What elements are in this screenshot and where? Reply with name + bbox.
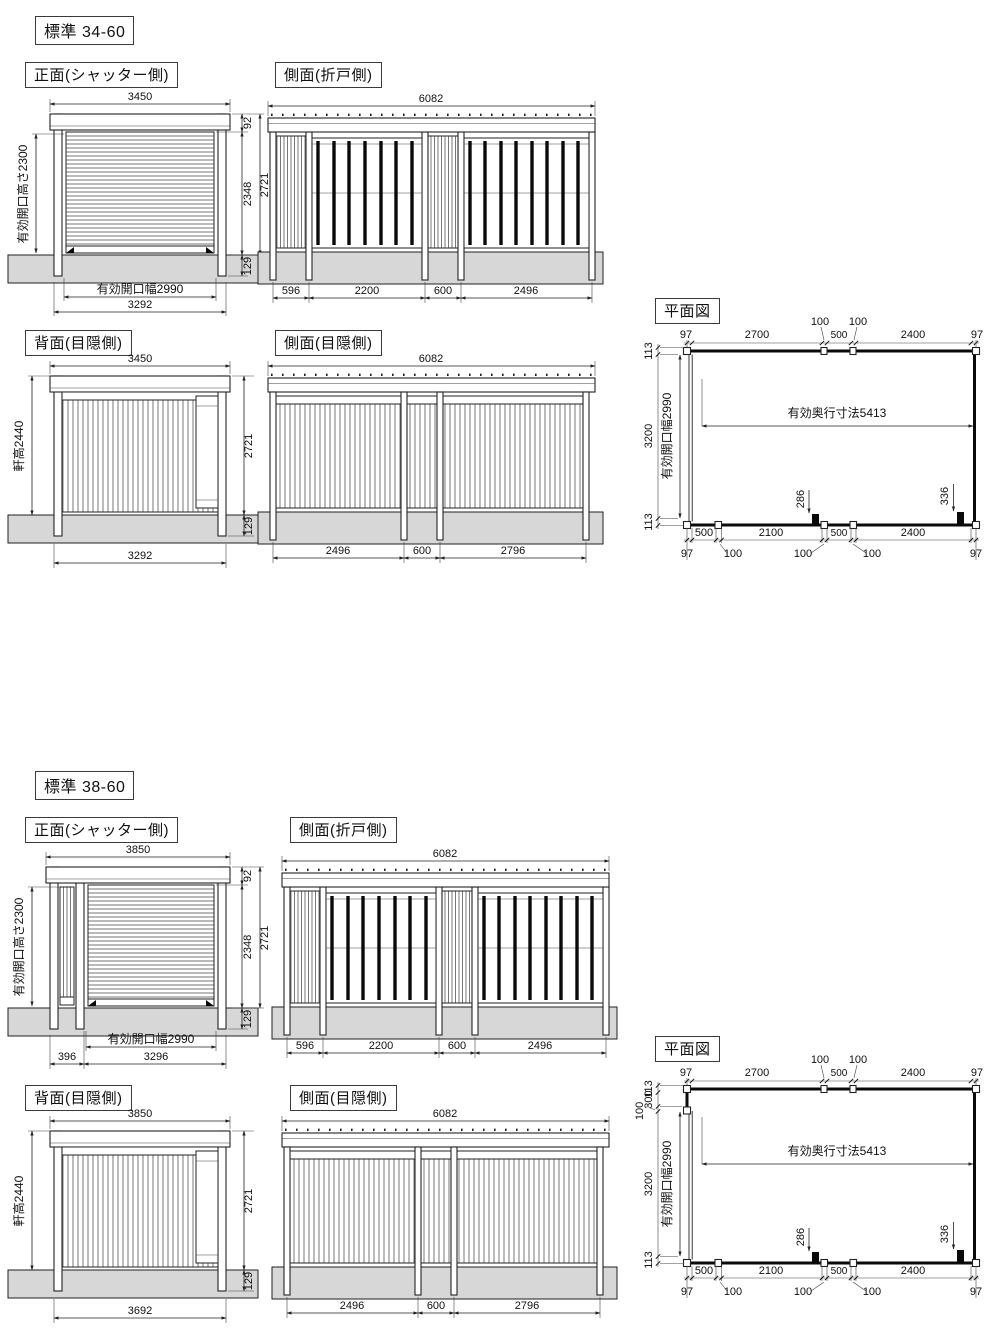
dim-width-top: 3450	[128, 91, 152, 103]
dim-top-6: 2400	[901, 1067, 925, 1079]
dim-eave-height: 軒高2440	[11, 1175, 26, 1226]
view-label-side-fold: 側面(折戸側)	[275, 62, 382, 88]
side-screen-elevation-drawing: 6082 2496 600 2796	[258, 352, 603, 570]
dim-bay-1: 2496	[326, 545, 350, 557]
dim-width-top: 3450	[128, 353, 152, 365]
screen-panel	[62, 1155, 218, 1267]
back-elevation-drawing: 3450 軒高2440 2721 129 3292	[6, 352, 272, 574]
dim-top-7: 97	[971, 1067, 983, 1079]
dim-bottom2-5: 97	[970, 548, 982, 560]
dim-eave-height: 軒高2440	[11, 420, 26, 471]
dim-shutter-height: 2348	[242, 935, 254, 959]
shutter-panel	[66, 132, 214, 253]
dim-bottom2-1: 97	[681, 1286, 693, 1298]
service-door	[196, 1151, 218, 1263]
dim-bottom1-1: 500	[695, 527, 713, 539]
dim-mark-mid: 286	[795, 1228, 807, 1246]
dim-width-bottom: 3292	[128, 299, 152, 311]
model-title-34-60: 標準 34-60	[35, 16, 134, 45]
side-screen-elevation-drawing: 6082 2496 600 2796	[272, 1107, 617, 1325]
dim-bay-2: 600	[427, 1300, 445, 1312]
dim-below-gl: 129	[242, 257, 254, 275]
dim-opening-height: 有効開口高さ2300	[11, 897, 26, 996]
dim-top-5: 100	[849, 316, 867, 328]
dim-width-top: 3850	[128, 1108, 152, 1120]
dim-bay-2: 2200	[355, 285, 379, 297]
dim-shutter-height: 2348	[242, 182, 254, 206]
dim-total-height: 2721	[243, 434, 255, 458]
dim-bottom1-3: 500	[831, 1266, 848, 1277]
dim-opening-width: 有効開口幅2990	[659, 1140, 674, 1227]
dim-opening-width: 有効開口幅2990	[659, 392, 674, 479]
side-fold-elevation-drawing: 6082 596 2200 600 2496	[258, 92, 603, 310]
dim-top-3: 100	[811, 1054, 829, 1066]
service-door	[196, 396, 218, 508]
dim-bottom1-4: 2400	[901, 1265, 925, 1277]
dim-bay-3: 2796	[501, 545, 525, 557]
dim-bay-4: 2496	[514, 285, 538, 297]
dim-depth: 有効奥行寸法5413	[788, 1143, 887, 1158]
dim-top-1: 97	[680, 329, 692, 341]
front-elevation-drawing: 3850 92 2348 129 2721 有効開口高さ2300 有効開口幅29…	[6, 843, 272, 1083]
dim-total-height: 2721	[259, 926, 271, 950]
plan-view-drawing: 97 2700 100 500 100 2400 97 113 300 100 …	[640, 1054, 1000, 1306]
anchor-mark-right	[957, 1250, 964, 1263]
dim-below-gl: 129	[243, 1272, 255, 1290]
dim-roof-height: 92	[242, 870, 254, 882]
view-label-front: 正面(シャッター側)	[25, 62, 178, 88]
dim-width-bottom: 3296	[144, 1051, 168, 1063]
dim-top-4: 500	[831, 1068, 848, 1079]
dim-width-top: 6082	[433, 1108, 457, 1120]
dim-bottom1-2: 2100	[759, 527, 783, 539]
view-label-front: 正面(シャッター側)	[25, 817, 178, 843]
dim-left-4: 3200	[643, 1172, 655, 1196]
dim-left-3: 113	[643, 513, 655, 531]
dim-bottom2-4: 100	[863, 548, 881, 560]
dim-bay-1: 596	[296, 1040, 314, 1052]
dim-bay-3: 2796	[515, 1300, 539, 1312]
dim-below-gl: 129	[243, 517, 255, 535]
side-slat-panel	[60, 887, 74, 997]
screen-panel	[290, 1159, 597, 1263]
dim-mark-right: 336	[939, 487, 951, 505]
dim-bay-1: 596	[282, 285, 300, 297]
dim-bottom2-4: 100	[863, 1286, 881, 1298]
dim-width-top: 6082	[433, 848, 457, 860]
dim-left-5: 113	[643, 1251, 655, 1269]
dim-left-1: 113	[643, 342, 655, 360]
front-elevation-drawing: 3450 92 2348 129 2721 有効開口高さ2300 有効開口幅29…	[6, 90, 272, 322]
dim-mark-mid: 286	[795, 490, 807, 508]
dim-left-3: 100	[634, 1102, 646, 1120]
dim-top-1: 97	[680, 1067, 692, 1079]
dim-opening-width: 有効開口幅2990	[97, 281, 184, 296]
dim-bay-2: 2200	[369, 1040, 393, 1052]
dim-opening-width: 有効開口幅2990	[108, 1031, 195, 1046]
dim-roof-height: 92	[242, 117, 254, 129]
dim-top-2: 2700	[745, 1067, 769, 1079]
dim-below-gl: 129	[242, 1010, 254, 1028]
dim-top-2: 2700	[745, 329, 769, 341]
dim-bottom2-3: 100	[794, 1286, 812, 1298]
dim-width-top: 6082	[419, 353, 443, 365]
dim-bay-1: 2496	[340, 1300, 364, 1312]
back-elevation-drawing: 3850 軒高2440 2721 129 3692	[6, 1107, 272, 1329]
dim-side-panel: 396	[58, 1051, 76, 1063]
dim-mark-right: 336	[939, 1225, 951, 1243]
drawing-sheet: 標準 34-60 正面(シャッター側) 3450 92 2348 129 272…	[0, 0, 1000, 1332]
dim-bottom2-3: 100	[794, 548, 812, 560]
dim-total-height: 2721	[243, 1189, 255, 1213]
dim-left-2: 3200	[643, 424, 655, 448]
dim-bottom1-3: 500	[831, 528, 848, 539]
dim-bay-2: 600	[413, 545, 431, 557]
anchor-mark-right	[957, 512, 964, 525]
dim-opening-height: 有効開口高さ2300	[15, 144, 30, 243]
shutter-panel	[88, 885, 214, 1006]
dim-top-7: 97	[971, 329, 983, 341]
anchor-mark-mid	[812, 1252, 819, 1263]
dim-top-5: 100	[849, 1054, 867, 1066]
screen-panel	[276, 404, 583, 508]
view-label-side-fold: 側面(折戸側)	[290, 817, 397, 843]
dim-width-bottom: 3292	[128, 550, 152, 562]
model-title-38-60: 標準 38-60	[35, 771, 134, 800]
dim-bottom2-1: 97	[681, 548, 693, 560]
dim-bottom2-2: 100	[724, 1286, 742, 1298]
dim-bottom1-4: 2400	[901, 527, 925, 539]
dim-bottom1-2: 2100	[759, 1265, 783, 1277]
dim-depth: 有効奥行寸法5413	[788, 405, 887, 420]
dim-bay-4: 2496	[528, 1040, 552, 1052]
dim-top-6: 2400	[901, 329, 925, 341]
plan-view-drawing: 97 2700 100 500 100 2400 97 113 3200 113…	[640, 316, 1000, 568]
side-fold-elevation-drawing: 6082 596 2200 600 2496	[272, 847, 617, 1065]
dim-bay-3: 600	[448, 1040, 466, 1052]
screen-panel	[62, 400, 218, 512]
dim-top-3: 100	[811, 316, 829, 328]
anchor-mark-mid	[812, 514, 819, 525]
dim-width-top: 3850	[126, 844, 150, 856]
dim-bottom1-1: 500	[695, 1265, 713, 1277]
dim-width-top: 6082	[419, 93, 443, 105]
dim-top-4: 500	[831, 330, 848, 341]
dim-bottom2-2: 100	[724, 548, 742, 560]
dim-width-bottom: 3692	[128, 1305, 152, 1317]
dim-bottom2-5: 97	[970, 1286, 982, 1298]
dim-bay-3: 600	[434, 285, 452, 297]
